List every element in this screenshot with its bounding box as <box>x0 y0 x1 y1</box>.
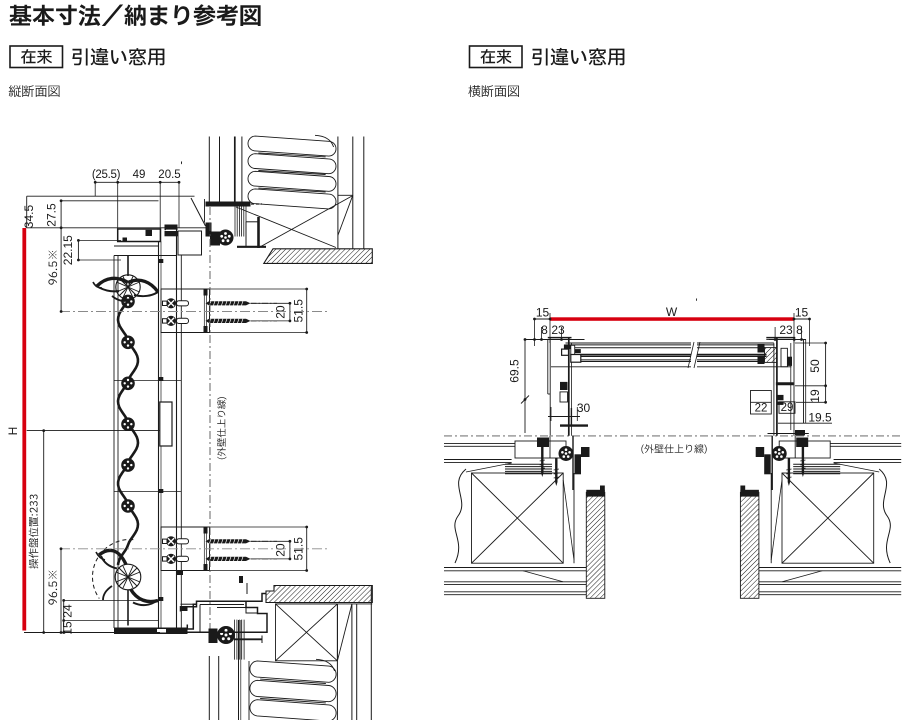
svg-text:30: 30 <box>577 401 591 415</box>
svg-text:W: W <box>666 305 678 319</box>
svg-text:34.5: 34.5 <box>22 204 36 228</box>
svg-text:20: 20 <box>274 543 288 557</box>
svg-text:H: H <box>6 427 20 436</box>
svg-text:49: 49 <box>133 169 146 181</box>
svg-text:51.5: 51.5 <box>292 299 306 323</box>
svg-text:15: 15 <box>795 306 809 320</box>
svg-text:': ' <box>695 297 697 309</box>
svg-text:(25.5): (25.5) <box>92 169 121 181</box>
svg-text:22: 22 <box>755 403 768 415</box>
svg-text:19.5: 19.5 <box>808 411 832 425</box>
svg-text:8: 8 <box>541 323 548 337</box>
svg-text:19: 19 <box>808 389 822 403</box>
svg-text:20.5: 20.5 <box>158 169 180 181</box>
svg-text:8: 8 <box>796 323 803 337</box>
svg-text:23: 23 <box>551 323 565 337</box>
svg-text:24: 24 <box>61 604 75 618</box>
svg-text:69.5: 69.5 <box>508 359 522 383</box>
svg-text:50: 50 <box>808 359 822 373</box>
svg-text:': ' <box>180 159 182 173</box>
svg-text:27.5: 27.5 <box>45 203 59 227</box>
svg-text:15: 15 <box>536 306 550 320</box>
svg-text:22.15: 22.15 <box>61 235 75 265</box>
svg-text:23: 23 <box>779 323 793 337</box>
